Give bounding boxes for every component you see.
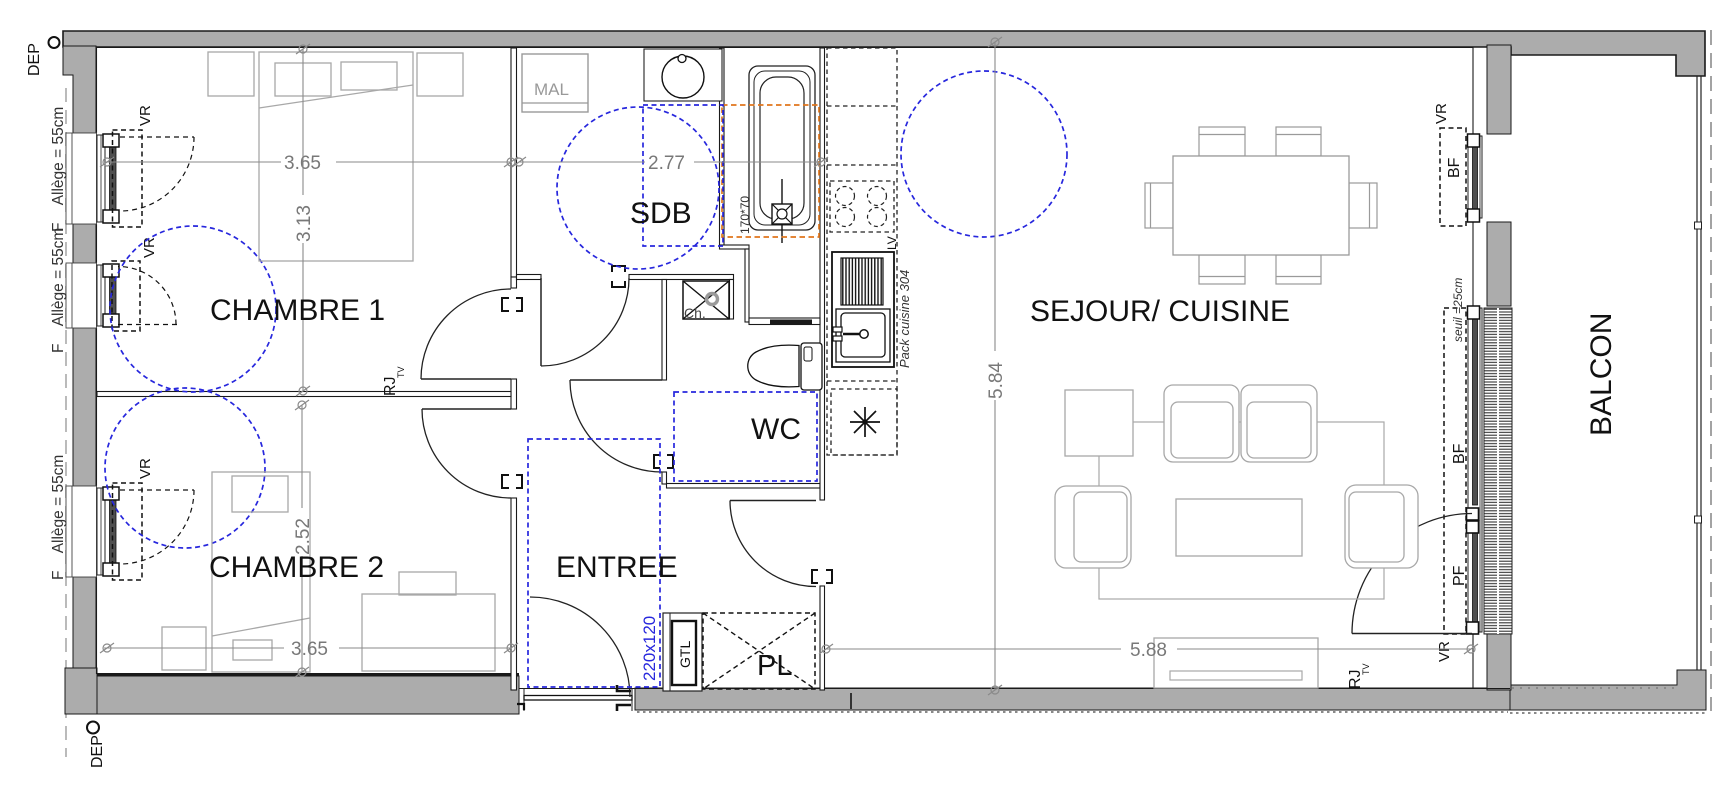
svg-text:WC: WC — [751, 413, 801, 446]
svg-text:Pack cuisine 304: Pack cuisine 304 — [897, 270, 912, 368]
svg-text:BF: BF — [1451, 443, 1468, 464]
svg-text:170*70: 170*70 — [738, 196, 752, 234]
svg-text:Ch.: Ch. — [684, 305, 706, 321]
svg-text:ENTREE: ENTREE — [556, 551, 678, 584]
svg-text:F Allège = 55cm: F Allège = 55cm — [50, 107, 67, 232]
svg-text:3.65: 3.65 — [291, 639, 328, 660]
svg-text:TV: TV — [1361, 663, 1371, 675]
svg-text:PL: PL — [757, 650, 792, 682]
svg-text:VR: VR — [137, 458, 154, 479]
svg-text:5.88: 5.88 — [1130, 640, 1167, 661]
svg-text:F Allège = 55cm: F Allège = 55cm — [50, 228, 67, 353]
svg-text:RJ: RJ — [382, 376, 399, 396]
svg-text:SEJOUR/ CUISINE: SEJOUR/ CUISINE — [1030, 295, 1290, 328]
svg-text:3.13: 3.13 — [294, 205, 315, 242]
svg-text:PF: PF — [1451, 565, 1468, 586]
svg-text:MAL: MAL — [534, 80, 569, 99]
svg-text:BF: BF — [1446, 157, 1463, 178]
svg-text:VR: VR — [1436, 641, 1453, 662]
svg-text:LV: LV — [885, 236, 899, 250]
svg-text:5.84: 5.84 — [986, 362, 1007, 399]
svg-text:BALCON: BALCON — [1585, 313, 1618, 436]
svg-text:VR: VR — [141, 237, 158, 258]
svg-text:220x120: 220x120 — [640, 616, 659, 681]
svg-text:DEP: DEP — [26, 43, 43, 76]
svg-text:F Allège = 55cm: F Allège = 55cm — [50, 455, 67, 580]
svg-text:seuil =25cm: seuil =25cm — [1451, 278, 1465, 342]
svg-text:TV: TV — [396, 366, 406, 378]
svg-text:CHAMBRE 2: CHAMBRE 2 — [209, 551, 384, 584]
svg-text:DEP: DEP — [89, 735, 106, 768]
svg-text:GTL: GTL — [677, 641, 693, 668]
svg-text:VR: VR — [1433, 103, 1450, 124]
svg-text:CHAMBRE 1: CHAMBRE 1 — [210, 294, 385, 327]
svg-text:2.52: 2.52 — [293, 518, 314, 555]
svg-text:VR: VR — [137, 105, 154, 126]
svg-text:SDB: SDB — [630, 197, 692, 230]
svg-text:2.77: 2.77 — [648, 153, 685, 174]
